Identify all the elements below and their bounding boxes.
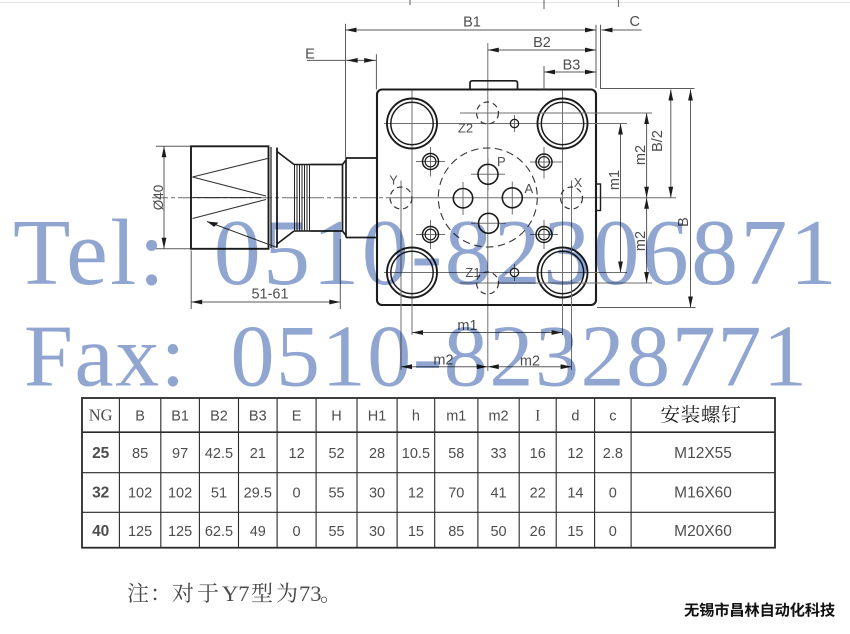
svg-text:12: 12 [289, 446, 305, 462]
svg-text:125: 125 [168, 524, 192, 540]
svg-text:E: E [305, 47, 315, 63]
svg-text:73: 73 [299, 581, 322, 606]
svg-text:22: 22 [530, 486, 546, 502]
svg-text:0: 0 [293, 486, 301, 502]
svg-text:12: 12 [567, 446, 583, 462]
svg-text:25: 25 [92, 445, 110, 462]
svg-text:B1: B1 [463, 15, 481, 31]
svg-text:Y: Y [389, 174, 398, 188]
svg-text:10.5: 10.5 [402, 446, 430, 462]
svg-text:15: 15 [567, 524, 583, 540]
svg-text:97: 97 [172, 446, 188, 462]
svg-text:102: 102 [168, 486, 192, 502]
svg-text:B/2: B/2 [650, 130, 666, 152]
svg-text:c: c [609, 409, 616, 425]
svg-text:0: 0 [609, 486, 617, 502]
svg-text:m2: m2 [633, 145, 649, 165]
svg-text:m2: m2 [488, 409, 508, 425]
svg-text:B3: B3 [563, 58, 581, 74]
svg-text:B: B [135, 409, 145, 425]
svg-text:NG: NG [89, 406, 113, 425]
svg-text:50: 50 [490, 524, 506, 540]
svg-text:16: 16 [530, 446, 546, 462]
svg-text:Z2: Z2 [458, 121, 473, 136]
svg-text:28: 28 [369, 446, 385, 462]
svg-text:49: 49 [250, 524, 266, 540]
svg-text:26: 26 [530, 524, 546, 540]
svg-text:42.5: 42.5 [205, 446, 233, 462]
svg-text:M12X55: M12X55 [674, 445, 732, 462]
svg-text:125: 125 [128, 524, 152, 540]
svg-text:B2: B2 [210, 409, 228, 425]
svg-text:40: 40 [92, 523, 109, 540]
svg-text:P: P [497, 154, 506, 169]
svg-text:Fax: 0510-82328771: Fax: 0510-82328771 [24, 309, 809, 406]
svg-text:A: A [525, 181, 534, 196]
svg-text:102: 102 [128, 486, 152, 502]
svg-text:85: 85 [132, 446, 148, 462]
svg-text:B1: B1 [171, 409, 189, 425]
svg-text:M20X60: M20X60 [674, 523, 732, 540]
svg-text:B3: B3 [249, 409, 267, 425]
svg-text:30: 30 [369, 524, 385, 540]
svg-text:51: 51 [211, 486, 227, 502]
svg-text:0: 0 [293, 524, 301, 540]
svg-text:M16X60: M16X60 [674, 485, 732, 502]
svg-text:C: C [630, 14, 640, 30]
svg-text:33: 33 [490, 446, 506, 462]
svg-text:B2: B2 [533, 35, 551, 51]
svg-text:14: 14 [567, 486, 583, 502]
svg-text:58: 58 [448, 446, 464, 462]
svg-text:Tel: 0510-82306871: Tel: 0510-82306871 [13, 201, 839, 305]
svg-text:70: 70 [448, 486, 464, 502]
svg-text:m1: m1 [607, 170, 623, 190]
svg-text:E: E [292, 409, 302, 425]
svg-text:X: X [574, 176, 583, 190]
svg-text:41: 41 [490, 486, 506, 502]
svg-text:55: 55 [328, 524, 344, 540]
svg-text:Y7: Y7 [222, 581, 250, 606]
svg-text:2.8: 2.8 [603, 446, 623, 462]
svg-text:85: 85 [448, 524, 464, 540]
svg-text:m1: m1 [446, 409, 466, 425]
svg-text:h: h [412, 409, 420, 425]
svg-text:32: 32 [92, 485, 109, 502]
svg-text:I: I [535, 408, 540, 425]
svg-text:55: 55 [328, 486, 344, 502]
svg-text:21: 21 [250, 446, 266, 462]
svg-text:0: 0 [609, 524, 617, 540]
svg-text:H: H [331, 409, 341, 425]
svg-text:30: 30 [369, 486, 385, 502]
svg-text:H1: H1 [368, 409, 387, 425]
svg-text:15: 15 [408, 524, 424, 540]
svg-text:29.5: 29.5 [244, 486, 272, 502]
svg-text:52: 52 [328, 446, 344, 462]
svg-text:12: 12 [408, 486, 424, 502]
svg-text:62.5: 62.5 [205, 524, 233, 540]
svg-text:d: d [571, 409, 579, 425]
